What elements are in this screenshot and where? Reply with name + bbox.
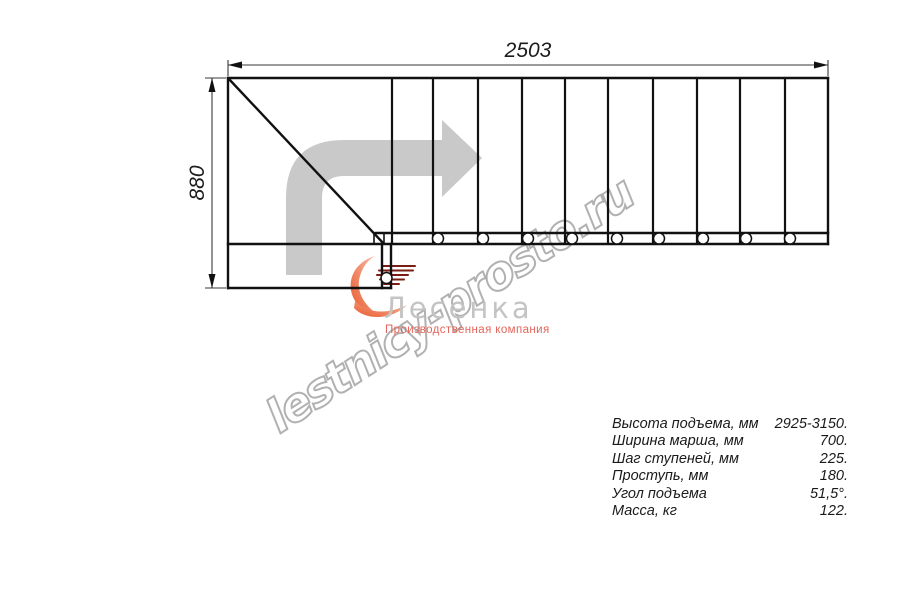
top-dimension-label: 2503: [504, 39, 552, 62]
spec-row-angle: Угол подъема 51,5°.: [612, 486, 848, 503]
spec-table: Высота подъема, мм 2925-3150. Ширина мар…: [612, 416, 848, 520]
spec-value: 122.: [820, 503, 848, 520]
spec-row-height: Высота подъема, мм 2925-3150.: [612, 416, 848, 433]
side-dimension-label: 880: [186, 165, 209, 200]
spec-label: Угол подъема: [612, 486, 810, 503]
top-dimension: [228, 60, 828, 76]
spec-label: Масса, кг: [612, 503, 820, 520]
spec-value: 51,5°.: [810, 486, 848, 503]
spec-row-mass: Масса, кг 122.: [612, 503, 848, 520]
spec-label: Шаг ступеней, мм: [612, 451, 820, 468]
spec-label: Проступь, мм: [612, 468, 820, 485]
spec-row-tread: Проступь, мм 180.: [612, 468, 848, 485]
spec-value: 700.: [820, 433, 848, 450]
spec-label: Ширина марша, мм: [612, 433, 820, 450]
spec-value: 225.: [820, 451, 848, 468]
spec-label: Высота подъема, мм: [612, 416, 775, 433]
spec-value: 180.: [820, 468, 848, 485]
baluster-circles: [381, 233, 796, 284]
spec-row-flight-width: Ширина марша, мм 700.: [612, 433, 848, 450]
spec-row-step-pitch: Шаг ступеней, мм 225.: [612, 451, 848, 468]
stair-drawing-page: lestnicy-prosto.ru Лесенка Производствен…: [0, 0, 900, 600]
direction-arrow: [286, 120, 482, 275]
spec-value: 2925-3150.: [775, 416, 848, 433]
